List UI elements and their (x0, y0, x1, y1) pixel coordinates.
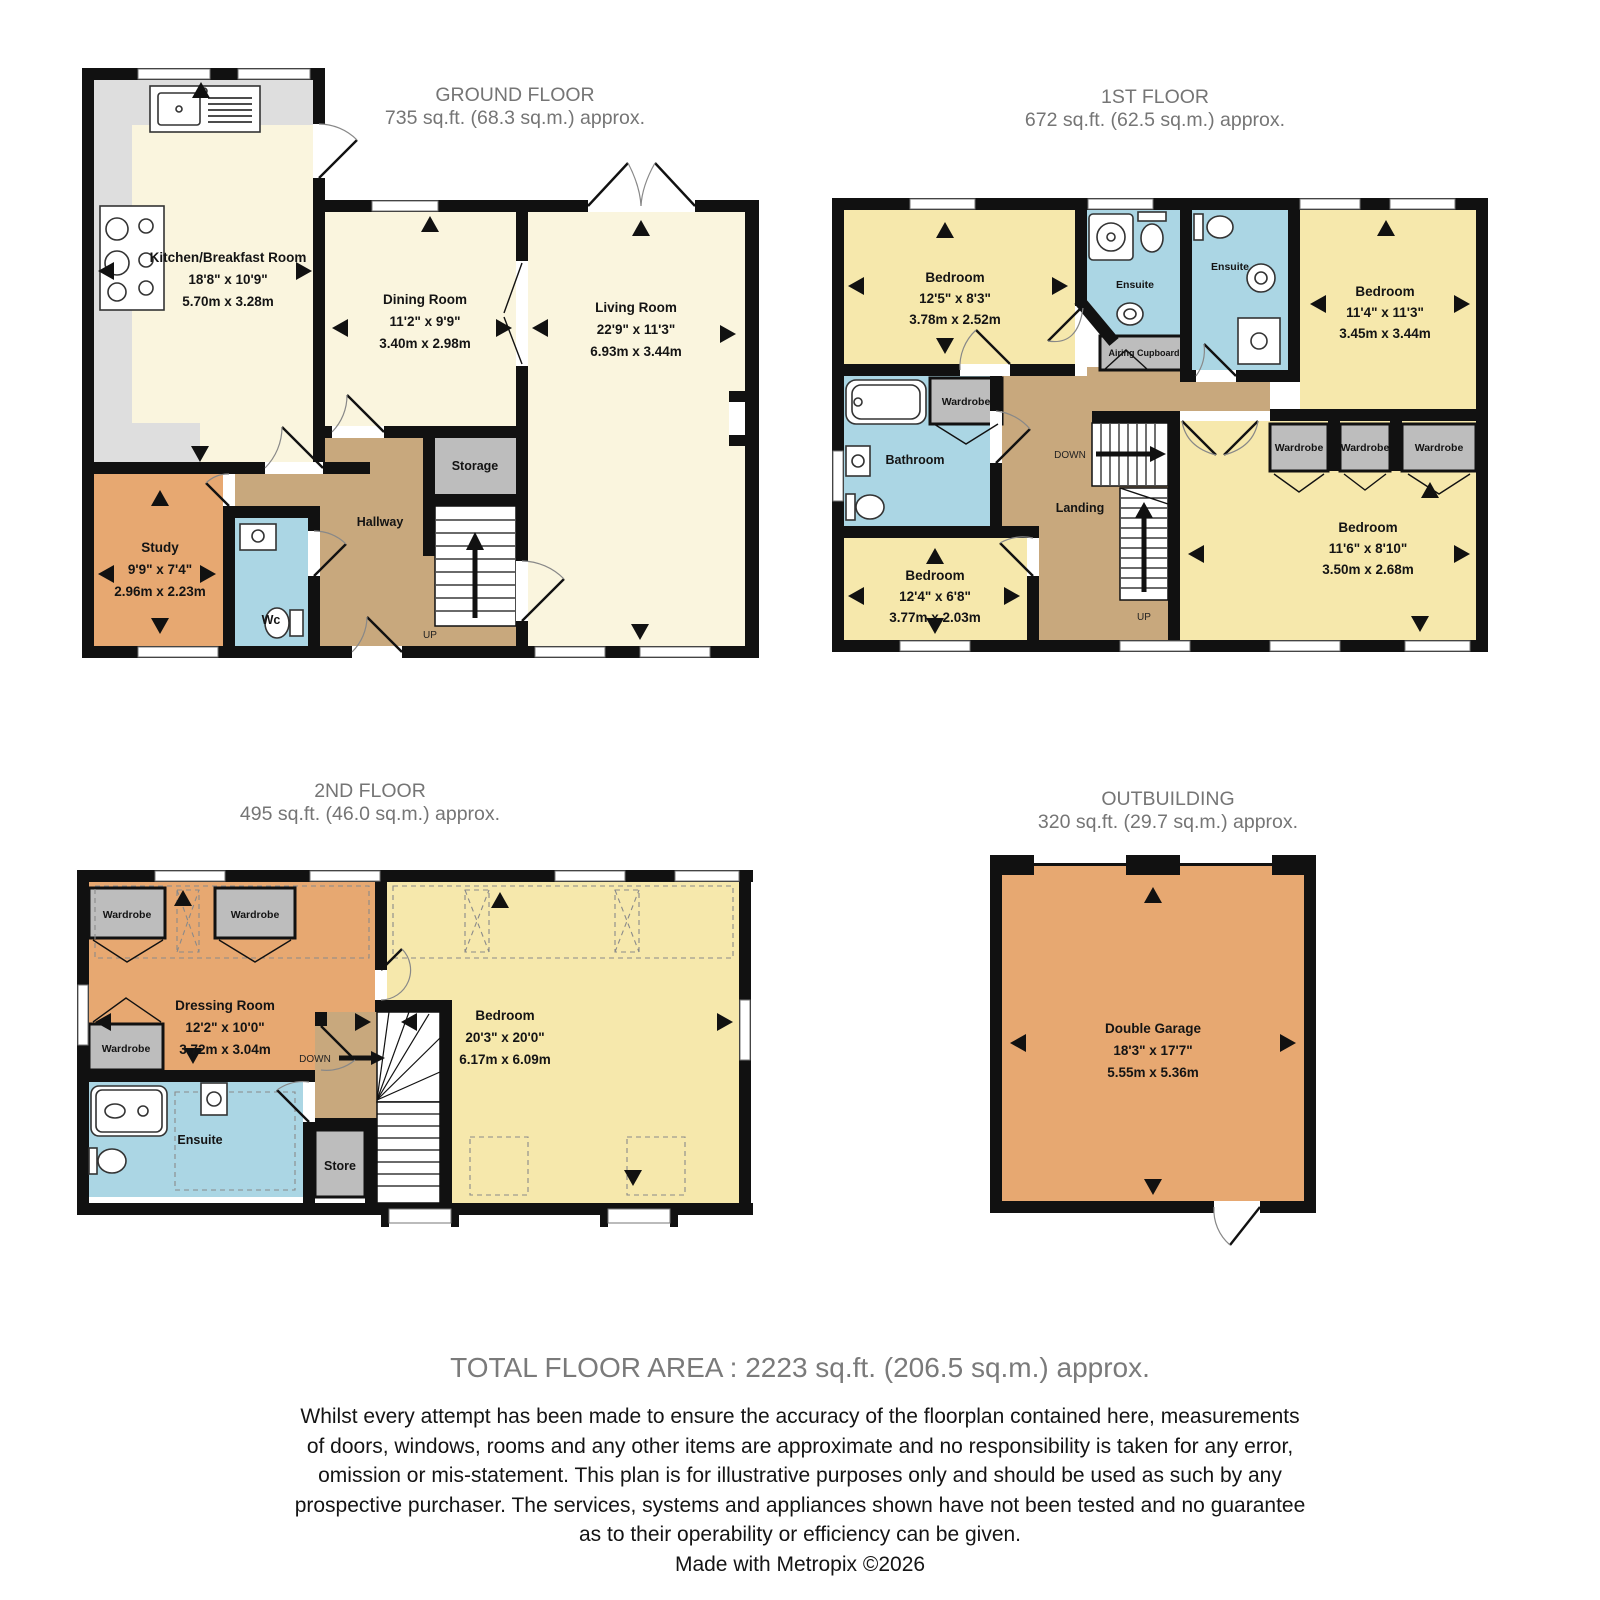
ensuite-label: Ensuite (177, 1133, 222, 1147)
dining-label: Dining Room (383, 292, 467, 307)
study-label: Study (141, 540, 179, 555)
floor-area-text: 495 sq.ft. (46.0 sq.m.) approx. (110, 803, 630, 826)
stairs-up-label: UP (1137, 612, 1151, 623)
basin-icon (201, 1083, 227, 1115)
airing-cupboard-label: Airing Cupboard (1109, 348, 1180, 358)
study-imperial: 9'9" x 7'4" (128, 562, 192, 577)
toilet-icon (1138, 212, 1166, 252)
living-metric: 6.93m x 3.44m (590, 344, 682, 359)
disclaimer-line: of doors, windows, rooms and any other i… (0, 1432, 1600, 1462)
dressing-label: Dressing Room (175, 998, 275, 1013)
dining-imperial: 11'2" x 9'9" (389, 314, 460, 329)
floor-title-text: 2ND FLOOR (110, 780, 630, 803)
ground-floor-plan: Kitchen/Breakfast Room 18'8" x 10'9" 5.7… (80, 66, 780, 666)
floor-title-text: OUTBUILDING (908, 788, 1428, 811)
stairs-down-label: DOWN (299, 1054, 331, 1065)
bedroom2-metric: 3.45m x 3.44m (1339, 326, 1431, 341)
study-metric: 2.96m x 2.23m (114, 584, 206, 599)
bathroom-label: Bathroom (885, 453, 944, 467)
shower-icon (1089, 214, 1133, 260)
first-floor-plan: Bedroom 12'5" x 8'3" 3.78m x 2.52m Ensui… (830, 196, 1490, 661)
ensuite2-label: Ensuite (1211, 261, 1249, 273)
garage-label: Double Garage (1105, 1021, 1202, 1036)
bedroom3-imperial: 11'6" x 8'10" (1329, 541, 1408, 556)
dining-metric: 3.40m x 2.98m (379, 336, 471, 351)
floor-area-text: 672 sq.ft. (62.5 sq.m.) approx. (895, 109, 1415, 132)
disclaimer: Whilst every attempt has been made to en… (0, 1402, 1600, 1579)
floor-title-text: 1ST FLOOR (895, 86, 1415, 109)
total-floor-area: TOTAL FLOOR AREA : 2223 sq.ft. (206.5 sq… (0, 1352, 1600, 1384)
bedroom4-label: Bedroom (905, 568, 964, 583)
shower-icon (91, 1086, 167, 1136)
basin-icon (1117, 303, 1143, 325)
disclaimer-line: prospective purchaser. The services, sys… (0, 1491, 1600, 1521)
bedroom4-metric: 3.77m x 2.03m (889, 610, 981, 625)
floor-area-text: 320 sq.ft. (29.7 sq.m.) approx. (908, 811, 1428, 834)
toilet-icon (89, 1148, 126, 1174)
stairs-up-label: UP (423, 630, 437, 641)
storage-label: Storage (452, 459, 499, 473)
bedroom2-imperial: 11'4" x 11'3" (1346, 305, 1424, 320)
first-floor-title: 1ST FLOOR 672 sq.ft. (62.5 sq.m.) approx… (895, 86, 1415, 132)
second-floor-title: 2ND FLOOR 495 sq.ft. (46.0 sq.m.) approx… (110, 780, 630, 826)
ensuite1-label: Ensuite (1116, 279, 1154, 291)
stairs-down-label: DOWN (1054, 450, 1086, 461)
bedroom2-label: Bedroom (1355, 284, 1414, 299)
staircase-down (1092, 423, 1168, 486)
dressing-imperial: 12'2" x 10'0" (185, 1020, 264, 1035)
living-imperial: 22'9" x 11'3" (597, 322, 676, 337)
kitchen-metric: 5.70m x 3.28m (182, 294, 274, 309)
disclaimer-line: omission or mis-statement. This plan is … (0, 1461, 1600, 1491)
bedroom1-imperial: 12'5" x 8'3" (919, 291, 991, 306)
basin-icon (1247, 264, 1275, 292)
bedroom3-label: Bedroom (1338, 520, 1397, 535)
bedroom-imperial: 20'3" x 20'0" (465, 1030, 544, 1045)
wardrobe-label: Wardrobe (942, 396, 991, 408)
toilet-icon (1194, 214, 1233, 240)
bath-icon (846, 380, 926, 424)
kitchen-imperial: 18'8" x 10'9" (188, 272, 267, 287)
wardrobe-label: Wardrobe (231, 909, 280, 921)
store-label: Store (324, 1159, 356, 1173)
wc-basin-icon (240, 524, 276, 550)
garage-imperial: 18'3" x 17'7" (1113, 1043, 1192, 1058)
wardrobe-label: Wardrobe (1275, 442, 1324, 454)
disclaimer-line: Whilst every attempt has been made to en… (0, 1402, 1600, 1432)
garage-metric: 5.55m x 5.36m (1107, 1065, 1199, 1080)
landing-label: Landing (1056, 501, 1105, 515)
dressing-metric: 3.72m x 3.04m (179, 1042, 271, 1057)
toilet-icon (846, 494, 884, 520)
doors (1214, 1201, 1260, 1245)
outbuilding-title: OUTBUILDING 320 sq.ft. (29.7 sq.m.) appr… (908, 788, 1428, 834)
bedroom1-metric: 3.78m x 2.52m (909, 312, 1001, 327)
sink-unit-icon (1238, 318, 1280, 364)
wardrobe-label: Wardrobe (1341, 442, 1390, 454)
bedroom3-metric: 3.50m x 2.68m (1322, 562, 1414, 577)
bedroom-label: Bedroom (475, 1008, 534, 1023)
kitchen-label: Kitchen/Breakfast Room (150, 250, 307, 265)
wardrobe-label: Wardrobe (1415, 442, 1464, 454)
bedroom4-imperial: 12'4" x 6'8" (899, 589, 971, 604)
bedroom-metric: 6.17m x 6.09m (459, 1052, 551, 1067)
living-label: Living Room (595, 300, 677, 315)
bedroom1-label: Bedroom (925, 270, 984, 285)
outbuilding-plan: Double Garage 18'3" x 17'7" 5.55m x 5.36… (988, 853, 1318, 1263)
staircase-up (1120, 488, 1168, 600)
dormer-window (600, 1209, 678, 1227)
second-floor-plan: Dressing Room 12'2" x 10'0" 3.72m x 3.04… (75, 862, 765, 1242)
hallway-label: Hallway (357, 515, 404, 529)
disclaimer-line: as to their operability or efficiency ca… (0, 1520, 1600, 1550)
floorplan-page: GROUND FLOOR 735 sq.ft. (68.3 sq.m.) app… (0, 0, 1600, 1600)
basin-icon (846, 446, 870, 476)
wc-label: Wc (262, 613, 281, 627)
staircase (435, 506, 516, 626)
wardrobe-label: Wardrobe (102, 1043, 151, 1055)
wardrobe-label: Wardrobe (103, 909, 152, 921)
fireplace (729, 391, 745, 446)
dormer-window (381, 1209, 459, 1227)
room-labels: Double Garage 18'3" x 17'7" 5.55m x 5.36… (1105, 1021, 1202, 1080)
metropix-credit: Made with Metropix ©2026 (0, 1550, 1600, 1580)
